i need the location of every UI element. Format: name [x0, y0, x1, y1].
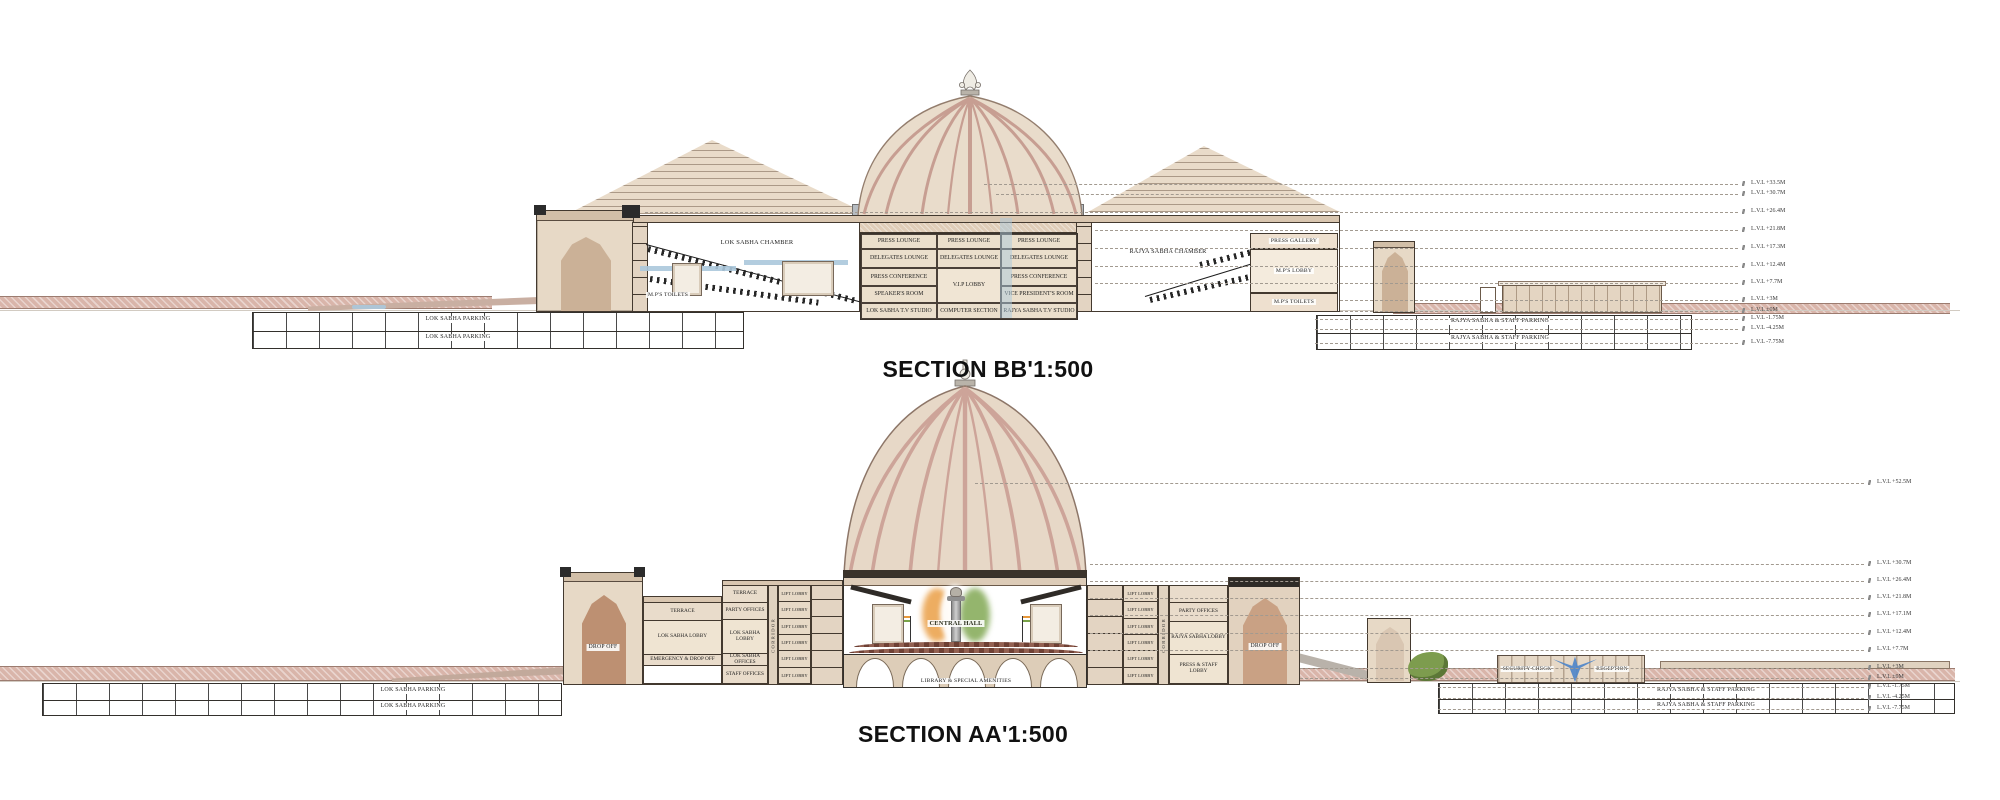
- level-marker: L.V.L +12.4M: [1864, 629, 1911, 635]
- leader-line: [1864, 480, 1875, 485]
- level-marker: L.V.L -7.75M: [1864, 705, 1910, 711]
- roof-cap: [534, 205, 546, 215]
- library-label: LIBRARY & SPECIAL AMENITIES: [919, 678, 1013, 684]
- left-room-column-a: TERRACE LOK SABHA LOBBY EMERGENCY & DROP…: [643, 602, 722, 685]
- leader-line: [1738, 227, 1749, 232]
- level-marker: L.V.L -1.75M: [1738, 315, 1784, 321]
- room-cell: RAJYA SABHA T.V STUDIO: [1001, 303, 1077, 319]
- leader-line: [1738, 340, 1749, 345]
- colonnade-annexe-bb: [1502, 285, 1662, 313]
- room-cell: EMERGENCY & DROP OFF: [644, 655, 721, 667]
- parking-floor-line: [43, 700, 561, 701]
- leader-line: [1738, 181, 1749, 186]
- room-cell-vip-lobby: V.I.P LOBBY: [937, 268, 1001, 303]
- leader-line: [1738, 308, 1749, 313]
- service-bay: [1087, 585, 1123, 685]
- leader-line: [1738, 280, 1749, 285]
- section-aa-title: SECTION AA'1:500: [858, 721, 1068, 748]
- parking-label: RAJYA SABHA & STAFF PARKING: [1654, 702, 1758, 709]
- level-marker: L.V.L +12.4M: [1738, 262, 1785, 268]
- room-label: M.P'S TOILETS: [646, 292, 690, 298]
- leader-line: [1864, 578, 1875, 583]
- hall-seating: [849, 648, 1083, 653]
- level-line: [984, 184, 1738, 185]
- level-marker: L.V.L +30.7M: [1864, 560, 1911, 566]
- center-room-grid-bb: PRESS LOUNGE PRESS LOUNGE PRESS LOUNGE D…: [860, 233, 1078, 320]
- room-cell: COMPUTER SECTION: [937, 303, 1001, 319]
- parking-label: LOK SABHA PARKING: [378, 703, 449, 710]
- flag-pole: [910, 616, 911, 642]
- parking-label: LOK SABHA PARKING: [423, 334, 494, 341]
- room-cell: PARTY OFFICES: [723, 603, 767, 621]
- room-cell: STAFF OFFICES: [723, 666, 767, 684]
- level-line: [1300, 678, 1864, 679]
- lift-lobby-cell: LIFT LOBBY: [779, 586, 810, 602]
- room-cell: PRESS CONFERENCE: [1001, 268, 1077, 286]
- room-cell: LOK SABHA OFFICES: [723, 654, 767, 666]
- lift-lobby-cell: LIFT LOBBY: [1124, 586, 1157, 602]
- room-cell: LOK SABHA LOBBY: [723, 620, 767, 654]
- room-cell: VICE PRESIDENT'S ROOM: [1001, 286, 1077, 303]
- leader-line: [1864, 684, 1875, 689]
- tower-cornice: [1229, 578, 1299, 587]
- dome-bb: [856, 68, 1084, 218]
- room-cell: PARTY OFFICES: [1170, 603, 1227, 623]
- roof-cap: [634, 567, 645, 577]
- level-marker: L.V.L -1.75M: [1864, 683, 1910, 689]
- leader-line: [1738, 245, 1749, 250]
- leader-line: [1738, 326, 1749, 331]
- room-cell: LOK SABHA LOBBY: [644, 621, 721, 655]
- level-line: [1340, 300, 1738, 301]
- hall-seating: [854, 642, 1078, 647]
- portrait-frame: [1030, 604, 1062, 644]
- parking-structure-left-aa: [42, 683, 562, 716]
- level-line: [645, 212, 1738, 213]
- level-line: [1090, 615, 1864, 616]
- angled-screen: [850, 585, 911, 605]
- lift-lobby-cell: LIFT LOBBY: [1124, 635, 1157, 651]
- level-marker: L.V.L +17.3M: [1738, 244, 1785, 250]
- level-marker: L.V.L +21.8M: [1864, 594, 1911, 600]
- lift-lobby-cell: LIFT LOBBY: [1124, 602, 1157, 618]
- level-line: [1095, 230, 1738, 231]
- level-marker: L.V.L +7.7M: [1864, 646, 1908, 652]
- leader-line: [1738, 316, 1749, 321]
- level-line: [1095, 248, 1738, 249]
- level-line: [1090, 581, 1864, 582]
- pointed-arch: [582, 595, 626, 684]
- parking-structure-left-bb: [252, 312, 744, 349]
- room-cell: [644, 666, 721, 684]
- leader-line: [1864, 561, 1875, 566]
- leader-line: [1738, 263, 1749, 268]
- roof-cap: [560, 567, 571, 577]
- portrait-frame: [872, 604, 904, 644]
- room-cell: TERRACE: [644, 603, 721, 621]
- level-line: [1438, 687, 1864, 688]
- level-line: [1090, 564, 1864, 565]
- gate-pavilion-left-bb: [536, 210, 634, 312]
- parking-label: RAJYA SABHA & STAFF PARKING: [1654, 687, 1758, 694]
- level-marker: L.V.L +3M: [1864, 664, 1904, 670]
- lift-lobby-cell: LIFT LOBBY: [779, 651, 810, 667]
- lift-lobby-cell: LIFT LOBBY: [779, 635, 810, 651]
- pointed-arch: [561, 237, 611, 311]
- room-label: DROP OFF: [587, 644, 620, 651]
- level-line: [1095, 266, 1738, 267]
- leader-line: [1738, 191, 1749, 196]
- site-label: RECEPTION: [1594, 666, 1629, 672]
- stepped-roof-right-bb: [1088, 146, 1340, 212]
- corridor-left: CORRIDOR: [768, 585, 778, 685]
- leader-line: [1864, 630, 1875, 635]
- level-line: [1090, 650, 1864, 651]
- room-cell: PRESS LOUNGE: [861, 234, 937, 249]
- level-marker: L.V.L +17.1M: [1864, 611, 1911, 617]
- room-label: M.P'S TOILETS: [1272, 299, 1316, 305]
- parking-label: LOK SABHA PARKING: [378, 687, 449, 694]
- level-marker: L.V.L +26.4M: [1864, 577, 1911, 583]
- room-cell: TERRACE: [723, 586, 767, 603]
- central-hall-block: CENTRAL HALL LIBRARY & SPECIAL AMENITIES: [843, 577, 1087, 688]
- level-line: [1095, 283, 1738, 284]
- portrait-frame: [782, 261, 834, 296]
- pavilion-cornice: [537, 211, 633, 221]
- room-cell: PRESS LOUNGE: [937, 234, 1001, 249]
- hall-cornice: [844, 578, 1086, 586]
- lift-lobby-cell: LIFT LOBBY: [1124, 668, 1157, 684]
- parking-label: RAJYA SABHA & STAFF PARKING: [1448, 335, 1552, 342]
- lift-lobby-stack-left: LIFT LOBBY LIFT LOBBY LIFT LOBBY LIFT LO…: [778, 585, 811, 685]
- gate-tower-right-aa: [1228, 577, 1300, 685]
- lift-lobby-cell: LIFT LOBBY: [779, 602, 810, 618]
- leader-line: [1864, 706, 1875, 711]
- service-bay: [811, 585, 843, 685]
- room-cell: PRESS & STAFF LOBBY: [1170, 655, 1227, 684]
- parking-floor-line: [1317, 333, 1691, 334]
- level-marker: L.V.L -4.25M: [1864, 694, 1910, 700]
- level-marker: L.V.L +3M: [1738, 296, 1778, 302]
- gallery-floors: [1076, 222, 1092, 312]
- level-line: [996, 194, 1738, 195]
- room-label: LOK SABHA CHAMBER: [719, 239, 796, 246]
- site-label: SECURITY CHECK: [1501, 666, 1554, 672]
- level-marker: L.V.L +7.7M: [1738, 279, 1782, 285]
- drawing-sheet: LOK SABHA PARKING LOK SABHA PARKING RAJY…: [0, 0, 2000, 800]
- stepped-roof-left-bb: [568, 140, 868, 214]
- room-label: M.P'S LOBBY: [1274, 268, 1314, 274]
- angled-screen: [1020, 585, 1081, 605]
- gate-tower-right-bb: [1373, 241, 1415, 313]
- room-cell: LOK SABHA T.V STUDIO: [861, 303, 937, 319]
- parking-floor-line: [253, 331, 743, 332]
- lift-lobby-cell: LIFT LOBBY: [779, 668, 810, 684]
- lion-capital-finial: [959, 70, 980, 95]
- leader-line: [1864, 675, 1875, 680]
- dome-aa: [840, 356, 1090, 578]
- lion-capital: [950, 587, 962, 597]
- lift-lobby-cell: LIFT LOBBY: [1124, 651, 1157, 667]
- room-cell: PRESS LOUNGE: [1001, 234, 1077, 249]
- level-marker: L.V.L ±0M: [1864, 674, 1904, 680]
- pointed-arch: [1243, 598, 1287, 684]
- leader-line: [1864, 595, 1875, 600]
- room-cell: SPEAKER'S ROOM: [861, 286, 937, 303]
- ground-band-right-bb: [1393, 303, 1950, 314]
- roof-cap: [622, 205, 640, 218]
- level-line: [1090, 598, 1864, 599]
- level-marker: L.V.L +26.4M: [1738, 208, 1785, 214]
- level-line: [1340, 311, 1738, 312]
- dome-eave-band: [843, 570, 1087, 577]
- room-cell: DELEGATES LOUNGE: [937, 249, 1001, 268]
- level-marker: L.V.L ±0M: [1738, 307, 1778, 313]
- corridor-right: CORRIDOR: [1158, 585, 1169, 685]
- level-line: [975, 483, 1864, 484]
- leader-line: [1738, 297, 1749, 302]
- water-strip: [352, 305, 386, 309]
- room-label: RAJYA SABHA CHAMBER: [1127, 248, 1208, 255]
- room-cell: DELEGATES LOUNGE: [1001, 249, 1077, 268]
- level-line: [1315, 343, 1738, 344]
- room-cell: PRESS CONFERENCE: [861, 268, 937, 286]
- right-room-column: PARTY OFFICES RAJYA SABHA LOBBY PRESS & …: [1169, 585, 1228, 685]
- center-roof-slab-bb: [846, 222, 1090, 233]
- pointed-arch: [1376, 627, 1404, 681]
- level-line: [1315, 319, 1738, 320]
- lift-lobby-stack-right: LIFT LOBBY LIFT LOBBY LIFT LOBBY LIFT LO…: [1123, 585, 1158, 685]
- tower-cornice: [564, 573, 642, 582]
- leader-line: [1864, 665, 1875, 670]
- leader-line: [1864, 695, 1875, 700]
- gate-tower-left-aa: [563, 572, 643, 685]
- leader-line: [1738, 209, 1749, 214]
- leader-line: [1864, 647, 1875, 652]
- level-marker: L.V.L +30.7M: [1738, 190, 1785, 196]
- level-line: [1438, 698, 1864, 699]
- room-cell: [1170, 586, 1227, 603]
- section-bb-title: SECTION BB'1:500: [883, 356, 1094, 383]
- level-line: [1315, 329, 1738, 330]
- level-marker: L.V.L +21.8M: [1738, 226, 1785, 232]
- room-label: PRESS GALLERY: [1269, 238, 1319, 244]
- level-marker: L.V.L +52.5M: [1864, 479, 1911, 485]
- glazed-shaft: [1000, 218, 1012, 318]
- hall-label: CENTRAL HALL: [927, 620, 984, 627]
- level-line: [1300, 668, 1864, 669]
- room-cell: DELEGATES LOUNGE: [861, 249, 937, 268]
- parking-label: LOK SABHA PARKING: [423, 316, 494, 323]
- level-marker: L.V.L -7.75M: [1738, 339, 1784, 345]
- lift-lobby-cell: LIFT LOBBY: [779, 619, 810, 635]
- room-label: DROP OFF: [1249, 643, 1282, 650]
- level-marker: L.V.L +33.5M: [1738, 180, 1785, 186]
- left-room-column-b: TERRACE PARTY OFFICES LOK SABHA LOBBY LO…: [722, 585, 768, 685]
- level-marker: L.V.L -4.25M: [1738, 325, 1784, 331]
- level-line: [1438, 709, 1864, 710]
- pointed-arch: [1382, 252, 1408, 312]
- level-line: [1090, 633, 1864, 634]
- leader-line: [1864, 612, 1875, 617]
